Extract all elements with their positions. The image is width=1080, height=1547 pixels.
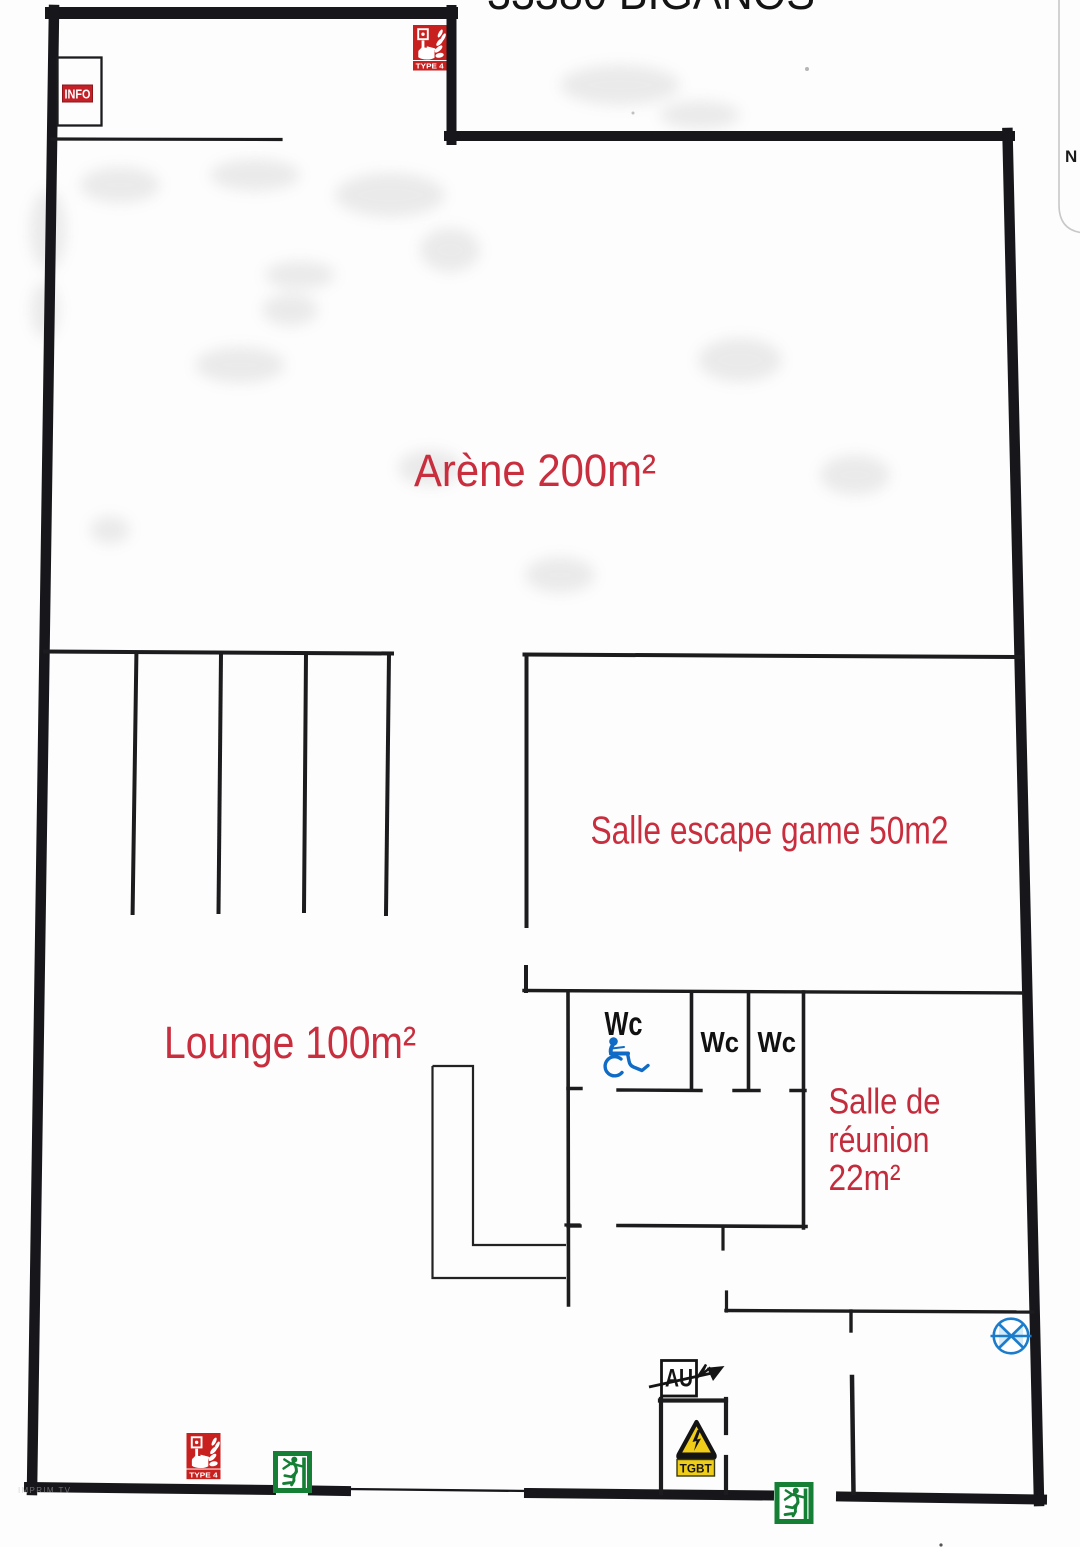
svg-text:N: N [1065, 147, 1077, 166]
svg-text:IMPRIM.TV: IMPRIM.TV [18, 1486, 71, 1495]
svg-text:réunion: réunion [829, 1119, 930, 1160]
svg-text:TGBT: TGBT [680, 1464, 712, 1476]
svg-text:Wc: Wc [701, 1027, 740, 1059]
svg-text:Wc: Wc [758, 1027, 797, 1059]
svg-text:Lounge 100m²: Lounge 100m² [164, 1017, 416, 1068]
svg-text:AU: AU [665, 1365, 693, 1393]
svg-text:22m²: 22m² [829, 1157, 901, 1198]
svg-text:Arène 200m²: Arène 200m² [414, 445, 656, 496]
svg-text:33380 BIGANOS: 33380 BIGANOS [487, 0, 815, 19]
svg-text:Wc: Wc [605, 1005, 643, 1042]
svg-text:Salle escape game 50m2: Salle escape game 50m2 [591, 810, 949, 853]
svg-text:INFO: INFO [65, 88, 91, 102]
svg-text:Salle de: Salle de [829, 1081, 941, 1122]
